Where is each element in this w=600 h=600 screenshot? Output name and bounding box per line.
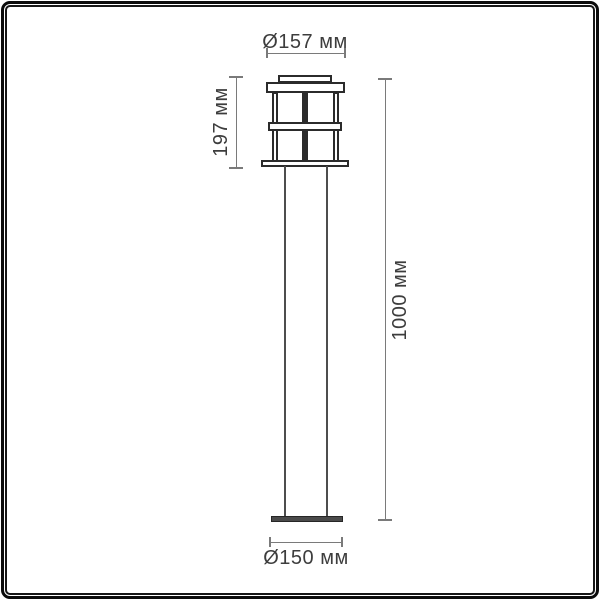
top-dimension-tick-left [266, 48, 268, 58]
top-diameter-label: Ø157 мм [235, 31, 375, 54]
lamp-base-plate [271, 516, 343, 522]
top-dimension-tick-right [344, 48, 346, 58]
base-diameter-label: Ø150 мм [236, 547, 376, 570]
drawing-canvas: Ø157 мм 197 мм 1000 мм Ø150 мм [0, 0, 600, 600]
lantern-middle-band [268, 122, 342, 131]
lamp-pole [284, 166, 328, 517]
head-height-label: 197 мм [210, 62, 232, 182]
total-height-label: 1000 мм [389, 240, 411, 360]
total-height-dimension-line [385, 79, 386, 520]
head-height-tick-top [229, 76, 243, 78]
total-height-tick-bottom [378, 519, 392, 521]
total-height-tick-top [378, 78, 392, 80]
base-dimension-tick-left [269, 537, 271, 547]
head-height-dimension-line [236, 77, 237, 168]
top-dimension-line [267, 53, 345, 54]
base-dimension-tick-right [341, 537, 343, 547]
base-dimension-line [270, 542, 342, 543]
head-height-tick-bottom [229, 167, 243, 169]
